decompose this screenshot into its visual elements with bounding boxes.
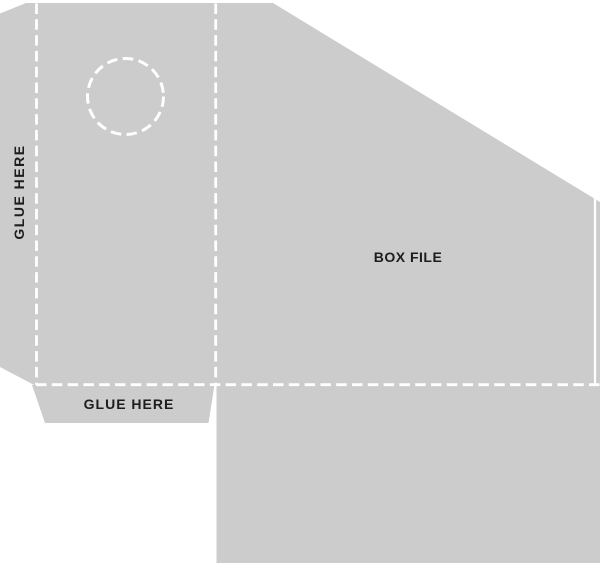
lower-right-panel-shape (217, 385, 600, 563)
glue-here-label-bottom: GLUE HERE (84, 396, 175, 412)
glue-here-label-left: GLUE HERE (11, 144, 27, 239)
box-file-title: BOX FILE (374, 249, 443, 265)
template-dieline-drawing (0, 0, 600, 563)
box-file-template-canvas: GLUE HERE GLUE HERE BOX FILE (0, 0, 600, 563)
card-upper-body-shape (0, 3, 600, 386)
